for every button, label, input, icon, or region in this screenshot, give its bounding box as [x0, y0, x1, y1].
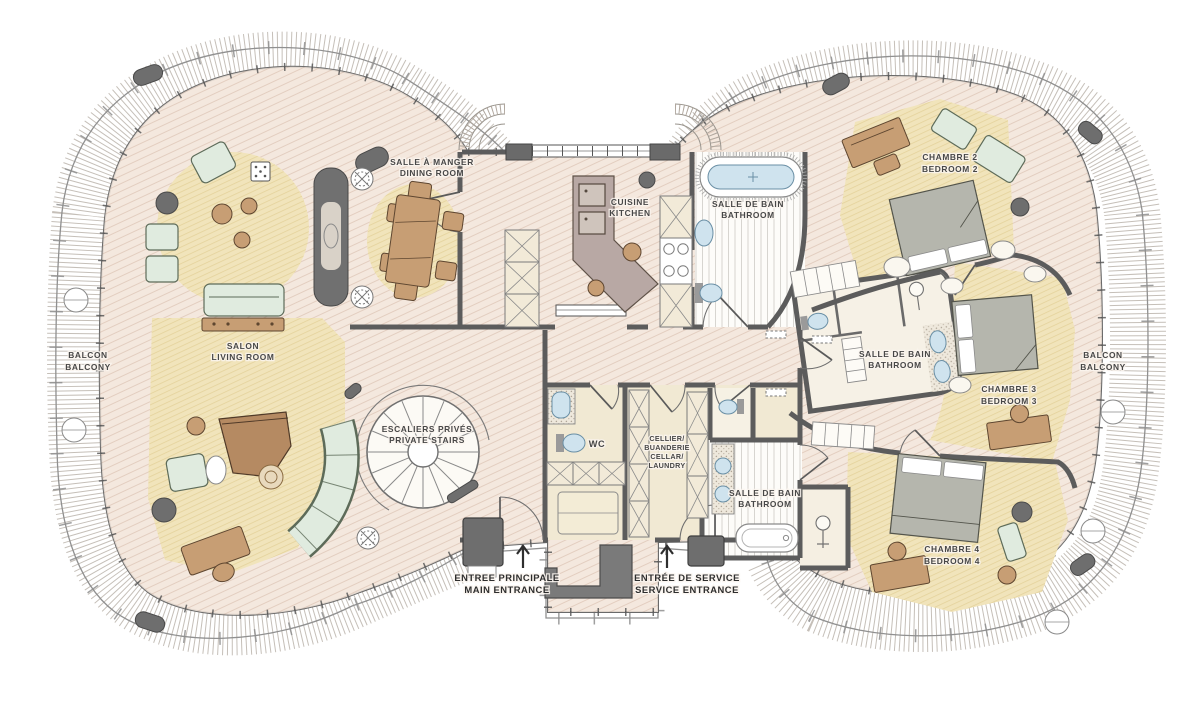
entry-pier [463, 518, 503, 566]
stool [1012, 502, 1032, 522]
label-salon-en: LIVING ROOM [212, 352, 275, 362]
label-bedroom4-en: BEDROOM 4 [924, 556, 980, 566]
label-balcony-right-en: BALCONY [1080, 362, 1126, 372]
coffee-table [241, 198, 257, 214]
plant [639, 172, 655, 188]
label-wc: WC [589, 439, 606, 449]
nightstand [991, 241, 1015, 259]
label-bedroom3-en: BEDROOM 3 [981, 396, 1037, 406]
floor-plan: SALLE À MANGER DINING ROOM CUISINE KITCH… [0, 0, 1200, 725]
sink-pedestal-icon [816, 516, 830, 530]
kitchen-cabinet-strip [505, 230, 539, 327]
hall-closets [547, 462, 625, 534]
label-dining-fr: SALLE À MANGER [390, 156, 474, 167]
pouf [949, 377, 971, 393]
label-cellar-2: BUANDERIE [644, 443, 689, 452]
label-balcony-left-fr: BALCON [68, 350, 107, 360]
label-main-entrance-fr: ENTREE PRINCIPALE [454, 572, 559, 583]
oval-table [206, 456, 226, 484]
armchair [166, 453, 209, 492]
cooktop [660, 238, 692, 284]
sofa [204, 284, 284, 316]
toilet-icon [700, 284, 722, 302]
label-kitchen-fr: CUISINE [611, 197, 649, 207]
label-bathroom-top-fr: SALLE DE BAIN [712, 199, 784, 209]
sink-icon [552, 392, 570, 418]
toilet-icon [563, 434, 585, 452]
fireplace-wall [314, 168, 348, 306]
nightstand [941, 278, 963, 294]
label-stairs-en: PRIVATE STAIRS [389, 435, 465, 445]
label-dining-en: DINING ROOM [400, 168, 464, 178]
window-band-kitchen [556, 305, 626, 316]
armchair [146, 224, 178, 250]
salon-round-rug [157, 152, 309, 304]
label-bathroom-top-en: BATHROOM [721, 210, 775, 220]
label-bathroom-bottom-fr: SALLE DE BAIN [729, 488, 801, 498]
label-main-entrance-en: MAIN ENTRANCE [464, 584, 549, 595]
label-cellar-4: LAUNDRY [649, 461, 686, 470]
label-bedroom4-fr: CHAMBRE 4 [924, 544, 979, 554]
toilet-room-fixtures [719, 399, 744, 414]
label-kitchen-en: KITCHEN [609, 208, 650, 218]
kitchen-wall-cabinets [660, 196, 692, 327]
sink-icon [695, 220, 713, 246]
label-balcony-left-en: BALCONY [65, 362, 111, 372]
label-service-entrance-en: SERVICE ENTRANCE [635, 584, 739, 595]
label-balcony-right-fr: BALCON [1083, 350, 1122, 360]
coffee-table [234, 232, 250, 248]
toilet-icon [719, 400, 737, 414]
label-service-entrance-fr: ENTRÉE DE SERVICE [634, 572, 740, 583]
nightstand [884, 257, 910, 277]
label-salon-fr: SALON [227, 341, 259, 351]
stool [588, 280, 604, 296]
label-bedroom2-en: BEDROOM 2 [922, 164, 978, 174]
pouf [998, 566, 1016, 584]
rattan-table [259, 465, 283, 489]
coffee-table [212, 204, 232, 224]
sink-icon [715, 458, 731, 474]
entry-pier [688, 536, 724, 566]
stool [623, 243, 641, 261]
pouf [187, 417, 205, 435]
label-bathroom-mid-en: BATHROOM [868, 360, 922, 370]
label-bedroom2-fr: CHAMBRE 2 [922, 152, 977, 162]
label-bathroom-mid-fr: SALLE DE BAIN [859, 349, 931, 359]
floor-plan-page: SALLE À MANGER DINING ROOM CUISINE KITCH… [0, 0, 1200, 725]
label-bathroom-bottom-en: BATHROOM [738, 499, 792, 509]
nightstand [1024, 266, 1046, 282]
stool [1011, 198, 1029, 216]
armchair [146, 256, 178, 282]
label-stairs-fr: ESCALIERS PRIVÉS [382, 423, 473, 434]
pouf [152, 498, 176, 522]
side-table [156, 192, 178, 214]
label-bedroom3-fr: CHAMBRE 3 [981, 384, 1036, 394]
label-cellar-3: CELLAR/ [650, 452, 683, 461]
label-cellar-1: CELLIER/ [649, 434, 684, 443]
